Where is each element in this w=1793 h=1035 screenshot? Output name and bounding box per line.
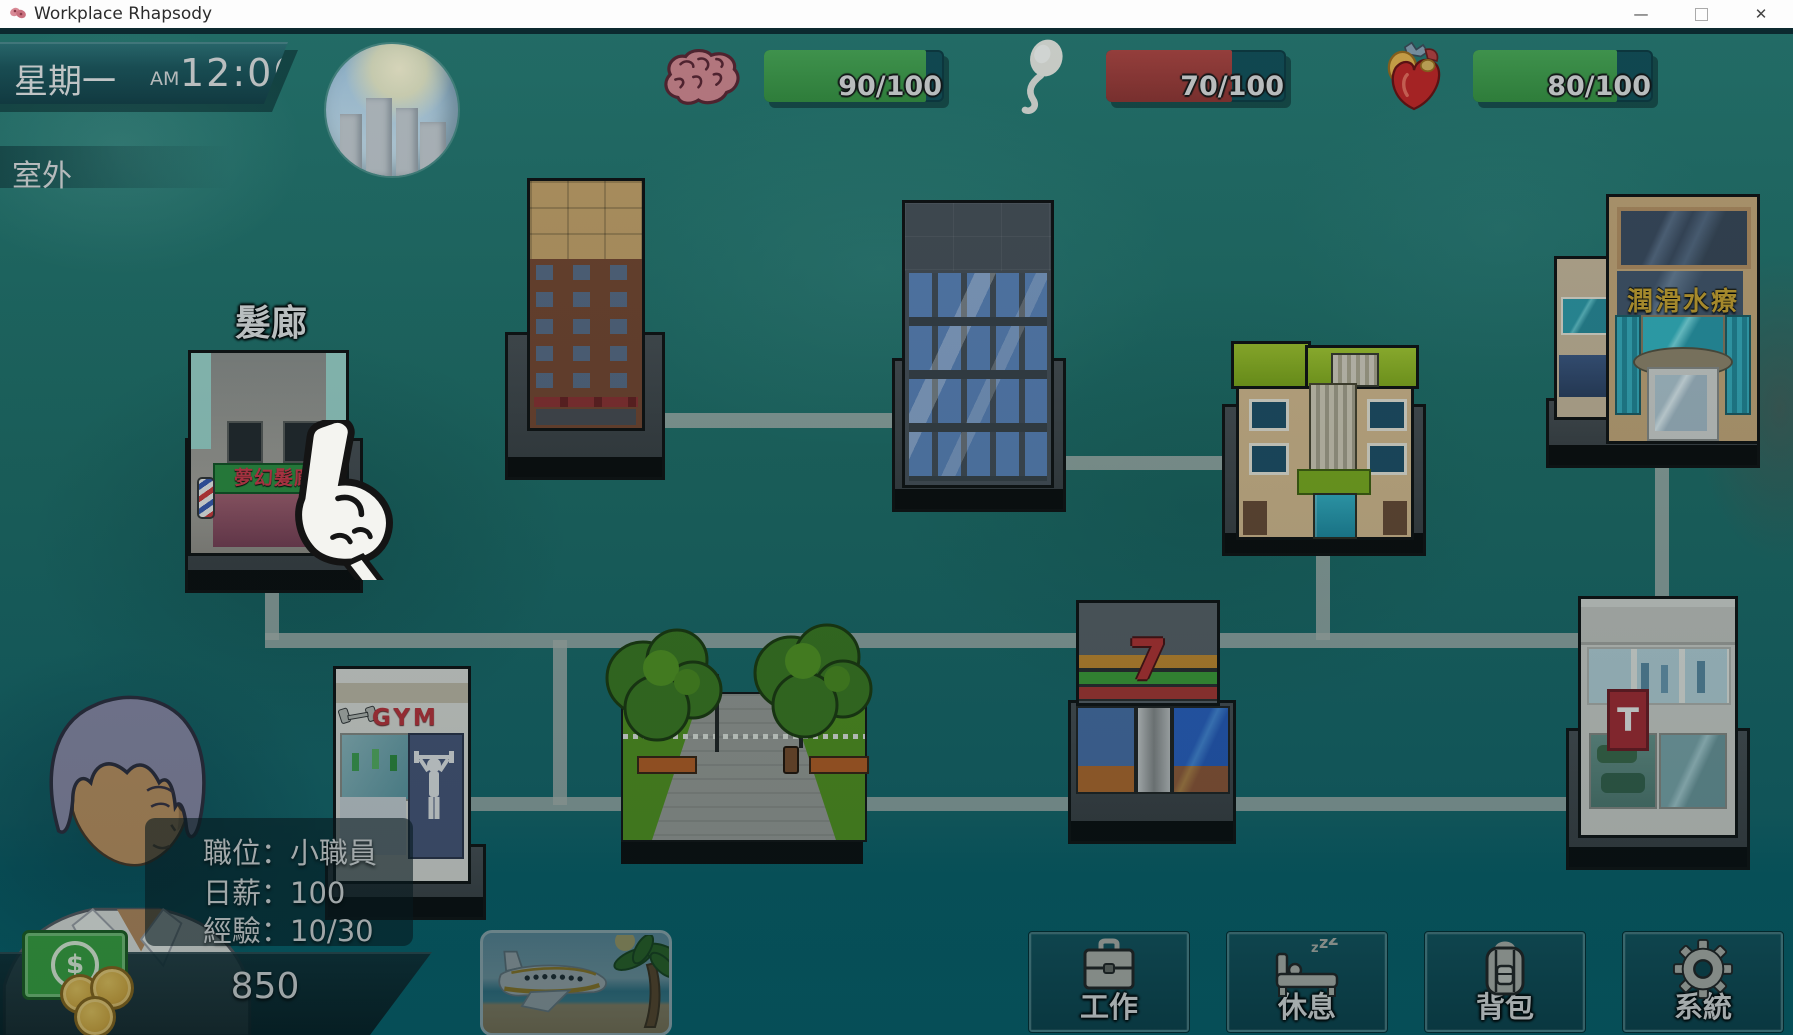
- travel-button[interactable]: [480, 930, 672, 1035]
- coin-icon: [74, 996, 116, 1035]
- gym-door-panel: [408, 733, 464, 859]
- gym-person: [352, 753, 359, 771]
- work-button[interactable]: 工作: [1029, 932, 1189, 1032]
- building-green-house[interactable]: [1222, 342, 1426, 574]
- sperm-icon: [1008, 38, 1074, 118]
- meridiem-label: AM: [150, 68, 179, 90]
- apartment-windows: [536, 265, 636, 393]
- tree: [599, 624, 735, 766]
- gym-window: [340, 733, 410, 801]
- money-value: 850: [205, 966, 325, 1007]
- park[interactable]: [605, 628, 877, 868]
- job-label: 職位：: [203, 836, 290, 870]
- gym-person: [390, 755, 397, 771]
- rest-button[interactable]: z z z 休息: [1227, 932, 1387, 1032]
- house-window: [1367, 443, 1407, 475]
- spa-top-window: [1617, 207, 1751, 269]
- green-vehicle: [1601, 773, 1645, 793]
- spa-annex-window: [1561, 297, 1609, 335]
- brain-icon: [660, 46, 742, 108]
- road-vertical-mid: [553, 640, 567, 805]
- spa-sign-text: 潤滑水療: [1609, 281, 1757, 318]
- building-t-store[interactable]: T: [1566, 596, 1748, 868]
- tstore-lower-window: [1659, 733, 1727, 809]
- stat-value: 90/100: [838, 71, 942, 102]
- house-column: [1309, 383, 1357, 475]
- spa-door: [1647, 367, 1719, 441]
- building-convenience-store[interactable]: 7: [1068, 600, 1236, 860]
- salon-trim-left: [191, 353, 211, 449]
- store-window: [1172, 706, 1230, 794]
- title-bar: Workplace Rhapsody — ✕: [0, 0, 1793, 28]
- stat-intelligence: 90/100: [660, 38, 950, 108]
- cursor-hand: [268, 420, 408, 580]
- office-glass: [909, 273, 1047, 481]
- house-awning: [1297, 469, 1371, 495]
- exp-value: 10/30: [290, 914, 374, 948]
- building-apartment[interactable]: [505, 178, 665, 480]
- spa-door-glass: [1655, 375, 1707, 431]
- spa-main: 潤滑水療: [1606, 194, 1760, 444]
- mannequin: [1697, 661, 1705, 693]
- gym-person: [372, 749, 379, 769]
- svg-text:z: z: [1328, 938, 1338, 950]
- salon-window: [227, 421, 263, 463]
- svg-text:z: z: [1319, 938, 1328, 952]
- store-window: [1076, 706, 1136, 794]
- tstore-sign-text: T: [1617, 701, 1639, 739]
- gym-top-band: [336, 683, 468, 703]
- backpack-icon: [1473, 938, 1537, 1000]
- gym-sign-text: GYM: [372, 705, 439, 731]
- window-title: Workplace Rhapsody: [34, 4, 212, 24]
- spa-annex-lower: [1559, 355, 1607, 397]
- gear-icon: [1671, 938, 1735, 1000]
- money-icon: $: [22, 926, 142, 1035]
- stat-value: 80/100: [1547, 71, 1651, 102]
- apartment-entrance: [536, 409, 636, 425]
- tree: [747, 616, 883, 764]
- system-button[interactable]: 系統: [1623, 932, 1783, 1032]
- house-window: [1249, 443, 1289, 475]
- app-icon: [9, 5, 27, 23]
- tstore-sign: T: [1607, 689, 1649, 751]
- bed-icon: z z z: [1271, 938, 1343, 1000]
- house-window: [1249, 399, 1289, 431]
- minimize-button[interactable]: —: [1618, 0, 1664, 28]
- maximize-icon: [1695, 8, 1708, 21]
- heart-icon: [1382, 40, 1446, 114]
- road-office-house: [1055, 456, 1235, 470]
- briefcase-icon: [1077, 938, 1141, 1000]
- house-door: [1313, 493, 1357, 539]
- road-main: [265, 633, 1669, 648]
- close-button[interactable]: ✕: [1738, 0, 1784, 28]
- salon-label: 髮廊: [235, 294, 307, 346]
- building-office[interactable]: [890, 200, 1065, 512]
- road-apartment-office: [640, 413, 905, 428]
- stat-value: 70/100: [1180, 71, 1284, 102]
- house-window: [1367, 399, 1407, 431]
- stat-health: 80/100: [1382, 38, 1672, 118]
- window-edge: [0, 28, 1793, 34]
- apartment-awnings: [534, 397, 638, 407]
- location-strip: 室外: [0, 146, 230, 188]
- location-label: 室外: [12, 151, 72, 195]
- game-window: Workplace Rhapsody — ✕ 髮廊 夢幻髮廊: [0, 0, 1793, 1035]
- travel-button-shade: [483, 933, 669, 1033]
- tstore-top: [1581, 599, 1735, 645]
- store-door: [1136, 706, 1172, 794]
- house-trim: [1383, 501, 1407, 535]
- backpack-button[interactable]: 背包: [1425, 932, 1585, 1032]
- barber-pole-icon: [197, 477, 215, 519]
- maximize-button[interactable]: [1678, 0, 1724, 28]
- lifter-icon: [412, 743, 456, 843]
- house-roof-left: [1231, 341, 1311, 389]
- player-info-panel: 職位：小職員 日薪：100 經驗：10/30: [145, 818, 413, 946]
- week-banner: 星期一 AM 12:00: [0, 42, 288, 104]
- building-spa[interactable]: 潤滑水療: [1546, 194, 1760, 466]
- exp-label: 經驗：: [203, 914, 290, 948]
- wage-value: 100: [290, 876, 345, 910]
- day-label: 星期一: [14, 54, 116, 103]
- wage-label: 日薪：: [203, 876, 290, 910]
- job-value: 小職員: [290, 836, 377, 870]
- house-trim: [1243, 501, 1267, 535]
- stat-libido: 70/100: [1008, 38, 1298, 118]
- mannequin: [1661, 665, 1668, 693]
- apartment-roof: [530, 181, 642, 259]
- house-balcony: [1331, 353, 1379, 387]
- daylight-indicator: [326, 44, 458, 176]
- office-top: [905, 203, 1051, 271]
- svg-text:z: z: [1311, 941, 1319, 956]
- store-seven-sign: 7: [1079, 631, 1217, 691]
